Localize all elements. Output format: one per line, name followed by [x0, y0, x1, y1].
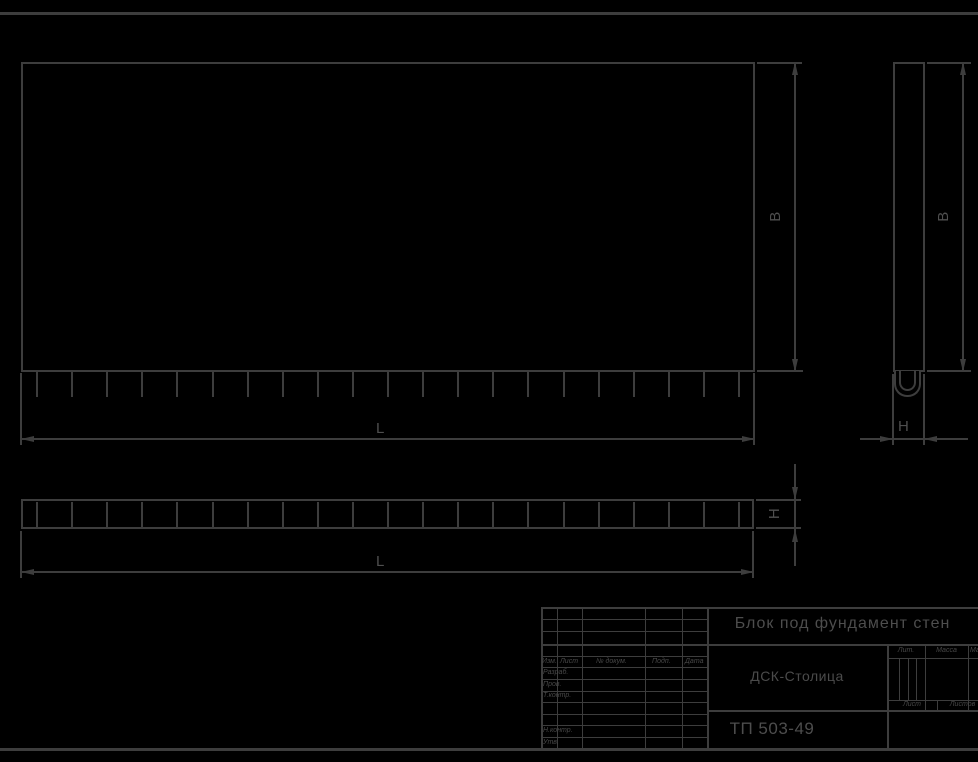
header-label-lit: Лит.	[887, 647, 925, 654]
title-block-line	[937, 700, 938, 711]
arrowhead-right	[880, 436, 893, 442]
header-label-masshtab: Масштаб	[970, 647, 978, 654]
extension-line	[892, 374, 894, 445]
arrowhead-right	[741, 569, 754, 575]
row-label-nkontr: Н.контр.	[543, 727, 573, 734]
title-block-line	[541, 644, 978, 646]
segment-line	[141, 502, 143, 529]
title-block-line	[541, 631, 708, 632]
cad-drawing-canvas: B L B H H	[0, 0, 978, 762]
title-block-line	[541, 656, 708, 657]
title-block-line	[908, 658, 909, 700]
loop-tick	[738, 372, 740, 397]
title-block-line	[541, 702, 708, 703]
segment-line	[387, 502, 389, 529]
loop-tick	[352, 372, 354, 397]
loop-tick	[36, 372, 38, 397]
arrowhead-up	[792, 62, 798, 75]
arrowhead-down	[792, 487, 798, 500]
loop-tick	[563, 372, 565, 397]
segment-line	[738, 502, 740, 529]
side-view-outline	[893, 62, 925, 372]
loop-tick	[317, 372, 319, 397]
segment-line	[598, 502, 600, 529]
extension-line	[923, 374, 925, 445]
segment-line	[633, 502, 635, 529]
segment-line	[668, 502, 670, 529]
document-number: ТП 503-49	[697, 719, 847, 739]
loop-tick	[141, 372, 143, 397]
frame-bottom-border	[0, 748, 978, 751]
dim-label-H-side: H	[898, 418, 909, 435]
title-block-line	[582, 607, 583, 749]
title-block-line	[541, 619, 708, 620]
loop-tick	[492, 372, 494, 397]
segment-line	[422, 502, 424, 529]
segment-line	[282, 502, 284, 529]
segment-line	[317, 502, 319, 529]
extension-line	[20, 373, 22, 445]
segment-line	[247, 502, 249, 529]
loop-tick	[633, 372, 635, 397]
organization-name: ДСК-Столица	[707, 668, 887, 684]
segment-line	[492, 502, 494, 529]
lifting-loop-inner	[899, 371, 916, 391]
col-label-list: Лист	[560, 658, 578, 665]
arrowhead-up	[960, 62, 966, 75]
dimension-line-B-front	[794, 62, 796, 372]
dimension-line-L-plan	[21, 571, 754, 573]
segment-line	[176, 502, 178, 529]
segment-line	[457, 502, 459, 529]
col-label-izm: Изм.	[542, 658, 557, 665]
title-block-line	[541, 667, 708, 668]
segment-line	[563, 502, 565, 529]
row-label-tkontr: Т.контр.	[543, 692, 571, 699]
dim-label-L-front: L	[376, 420, 385, 437]
loop-tick	[387, 372, 389, 397]
loop-tick	[282, 372, 284, 397]
loop-tick	[703, 372, 705, 397]
front-view-outline	[21, 62, 755, 372]
loop-tick	[247, 372, 249, 397]
header-label-massa: Масса	[925, 647, 968, 654]
loop-tick	[106, 372, 108, 397]
title-block-line	[916, 658, 917, 700]
loop-tick	[71, 372, 73, 397]
title-block-line	[541, 679, 708, 680]
title-block-line	[682, 607, 683, 749]
loop-tick	[457, 372, 459, 397]
loop-tick	[212, 372, 214, 397]
arrowhead-down	[960, 359, 966, 372]
sheets-label: Листов	[940, 701, 978, 708]
dimension-line-H-plan	[794, 464, 796, 566]
dimension-line-L-front	[21, 438, 755, 440]
title-block-line	[887, 644, 889, 749]
arrowhead-left	[21, 436, 34, 442]
title-block-line	[645, 607, 646, 749]
loop-tick	[176, 372, 178, 397]
row-label-utv: Утв.	[543, 739, 559, 746]
dimension-line-B-side	[962, 62, 964, 372]
segment-line	[352, 502, 354, 529]
title-block-line	[541, 607, 978, 609]
arrowhead-up	[792, 529, 798, 542]
title-block-line	[887, 658, 978, 659]
segment-line	[703, 502, 705, 529]
segment-line	[106, 502, 108, 529]
segment-line	[212, 502, 214, 529]
dim-label-H-plan: H	[766, 508, 783, 519]
loop-tick	[668, 372, 670, 397]
arrowhead-right	[742, 436, 755, 442]
frame-top-border	[0, 12, 978, 15]
segment-line	[36, 502, 38, 529]
dim-label-B-front: B	[767, 211, 784, 222]
arrowhead-down	[792, 359, 798, 372]
loop-tick	[598, 372, 600, 397]
title-block-line	[541, 725, 708, 726]
title-block-line	[541, 714, 708, 715]
dim-label-B-side: B	[935, 211, 952, 222]
row-label-prov: Пров.	[543, 681, 561, 688]
arrowhead-left	[21, 569, 34, 575]
col-label-podp: Подп.	[652, 658, 671, 665]
col-label-data: Дата	[685, 658, 703, 665]
title-block-line	[899, 658, 900, 700]
sheet-label: Лист	[887, 701, 937, 708]
extension-line	[753, 373, 755, 445]
drawing-title: Блок под фундамент стен	[707, 615, 978, 633]
segment-line	[71, 502, 73, 529]
row-label-razrab: Разраб.	[543, 669, 568, 676]
col-label-doc: № докум.	[596, 658, 627, 665]
dimension-line-H-side	[860, 438, 968, 440]
arrowhead-left	[924, 436, 937, 442]
title-block-line	[541, 737, 708, 738]
segment-line	[527, 502, 529, 529]
loop-tick	[422, 372, 424, 397]
dim-label-L-plan: L	[376, 553, 385, 570]
loop-tick	[527, 372, 529, 397]
